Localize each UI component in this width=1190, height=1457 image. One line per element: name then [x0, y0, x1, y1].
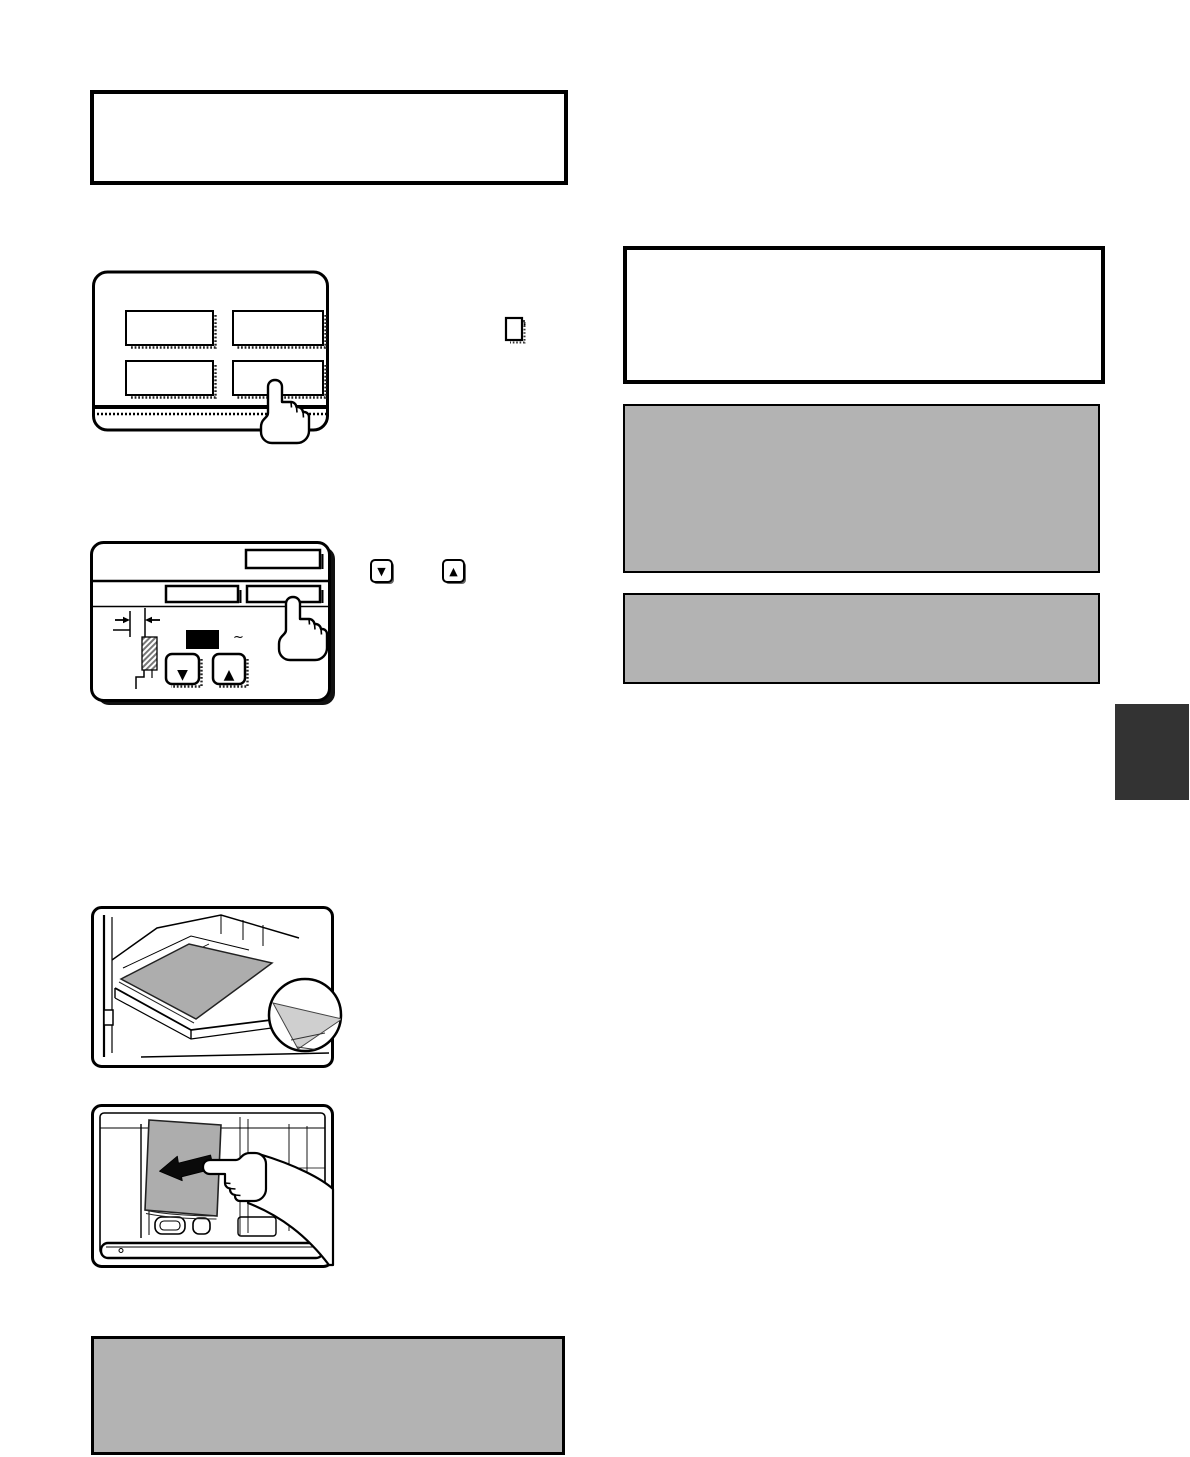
info-box-right-2	[623, 593, 1100, 684]
touch-key-mid-right	[247, 586, 320, 602]
touch-key-top-right	[246, 550, 320, 568]
touch-key-icon	[504, 316, 530, 346]
touch-key-bottom-left	[126, 361, 213, 395]
paper-tray-illustration	[91, 1104, 334, 1268]
up-arrow-icon: ▲	[224, 667, 235, 683]
info-box-right-1	[623, 404, 1100, 573]
tilde-mark: ~	[233, 630, 244, 645]
manual-page: ~ ▼ ▲ ▼ ▲	[0, 0, 1190, 1457]
info-box-bottom	[91, 1336, 565, 1455]
touch-key-top-right	[233, 311, 323, 345]
touch-panel-diagram-2: ~ ▼ ▲	[86, 536, 341, 721]
bypass-tray-illustration	[91, 906, 343, 1068]
page-edge-tab	[1115, 704, 1189, 800]
value-display	[186, 630, 219, 649]
down-arrow-icon: ▼	[177, 667, 188, 683]
note-box-right	[623, 246, 1105, 384]
down-arrow-icon: ▼	[377, 566, 385, 577]
zoom-circle-inset	[269, 979, 342, 1051]
note-box-top-left	[90, 90, 568, 185]
touch-panel-diagram-1	[88, 268, 338, 446]
touch-key-mid-left	[166, 586, 238, 602]
up-arrow-icon: ▲	[449, 566, 457, 577]
inline-up-arrow-key: ▲	[442, 559, 465, 583]
touch-key-top-left	[126, 311, 213, 345]
key-face	[506, 318, 522, 340]
drawer-front	[101, 1243, 323, 1258]
shifted-margin-bar	[142, 637, 157, 670]
inline-down-arrow-key: ▼	[370, 559, 393, 583]
